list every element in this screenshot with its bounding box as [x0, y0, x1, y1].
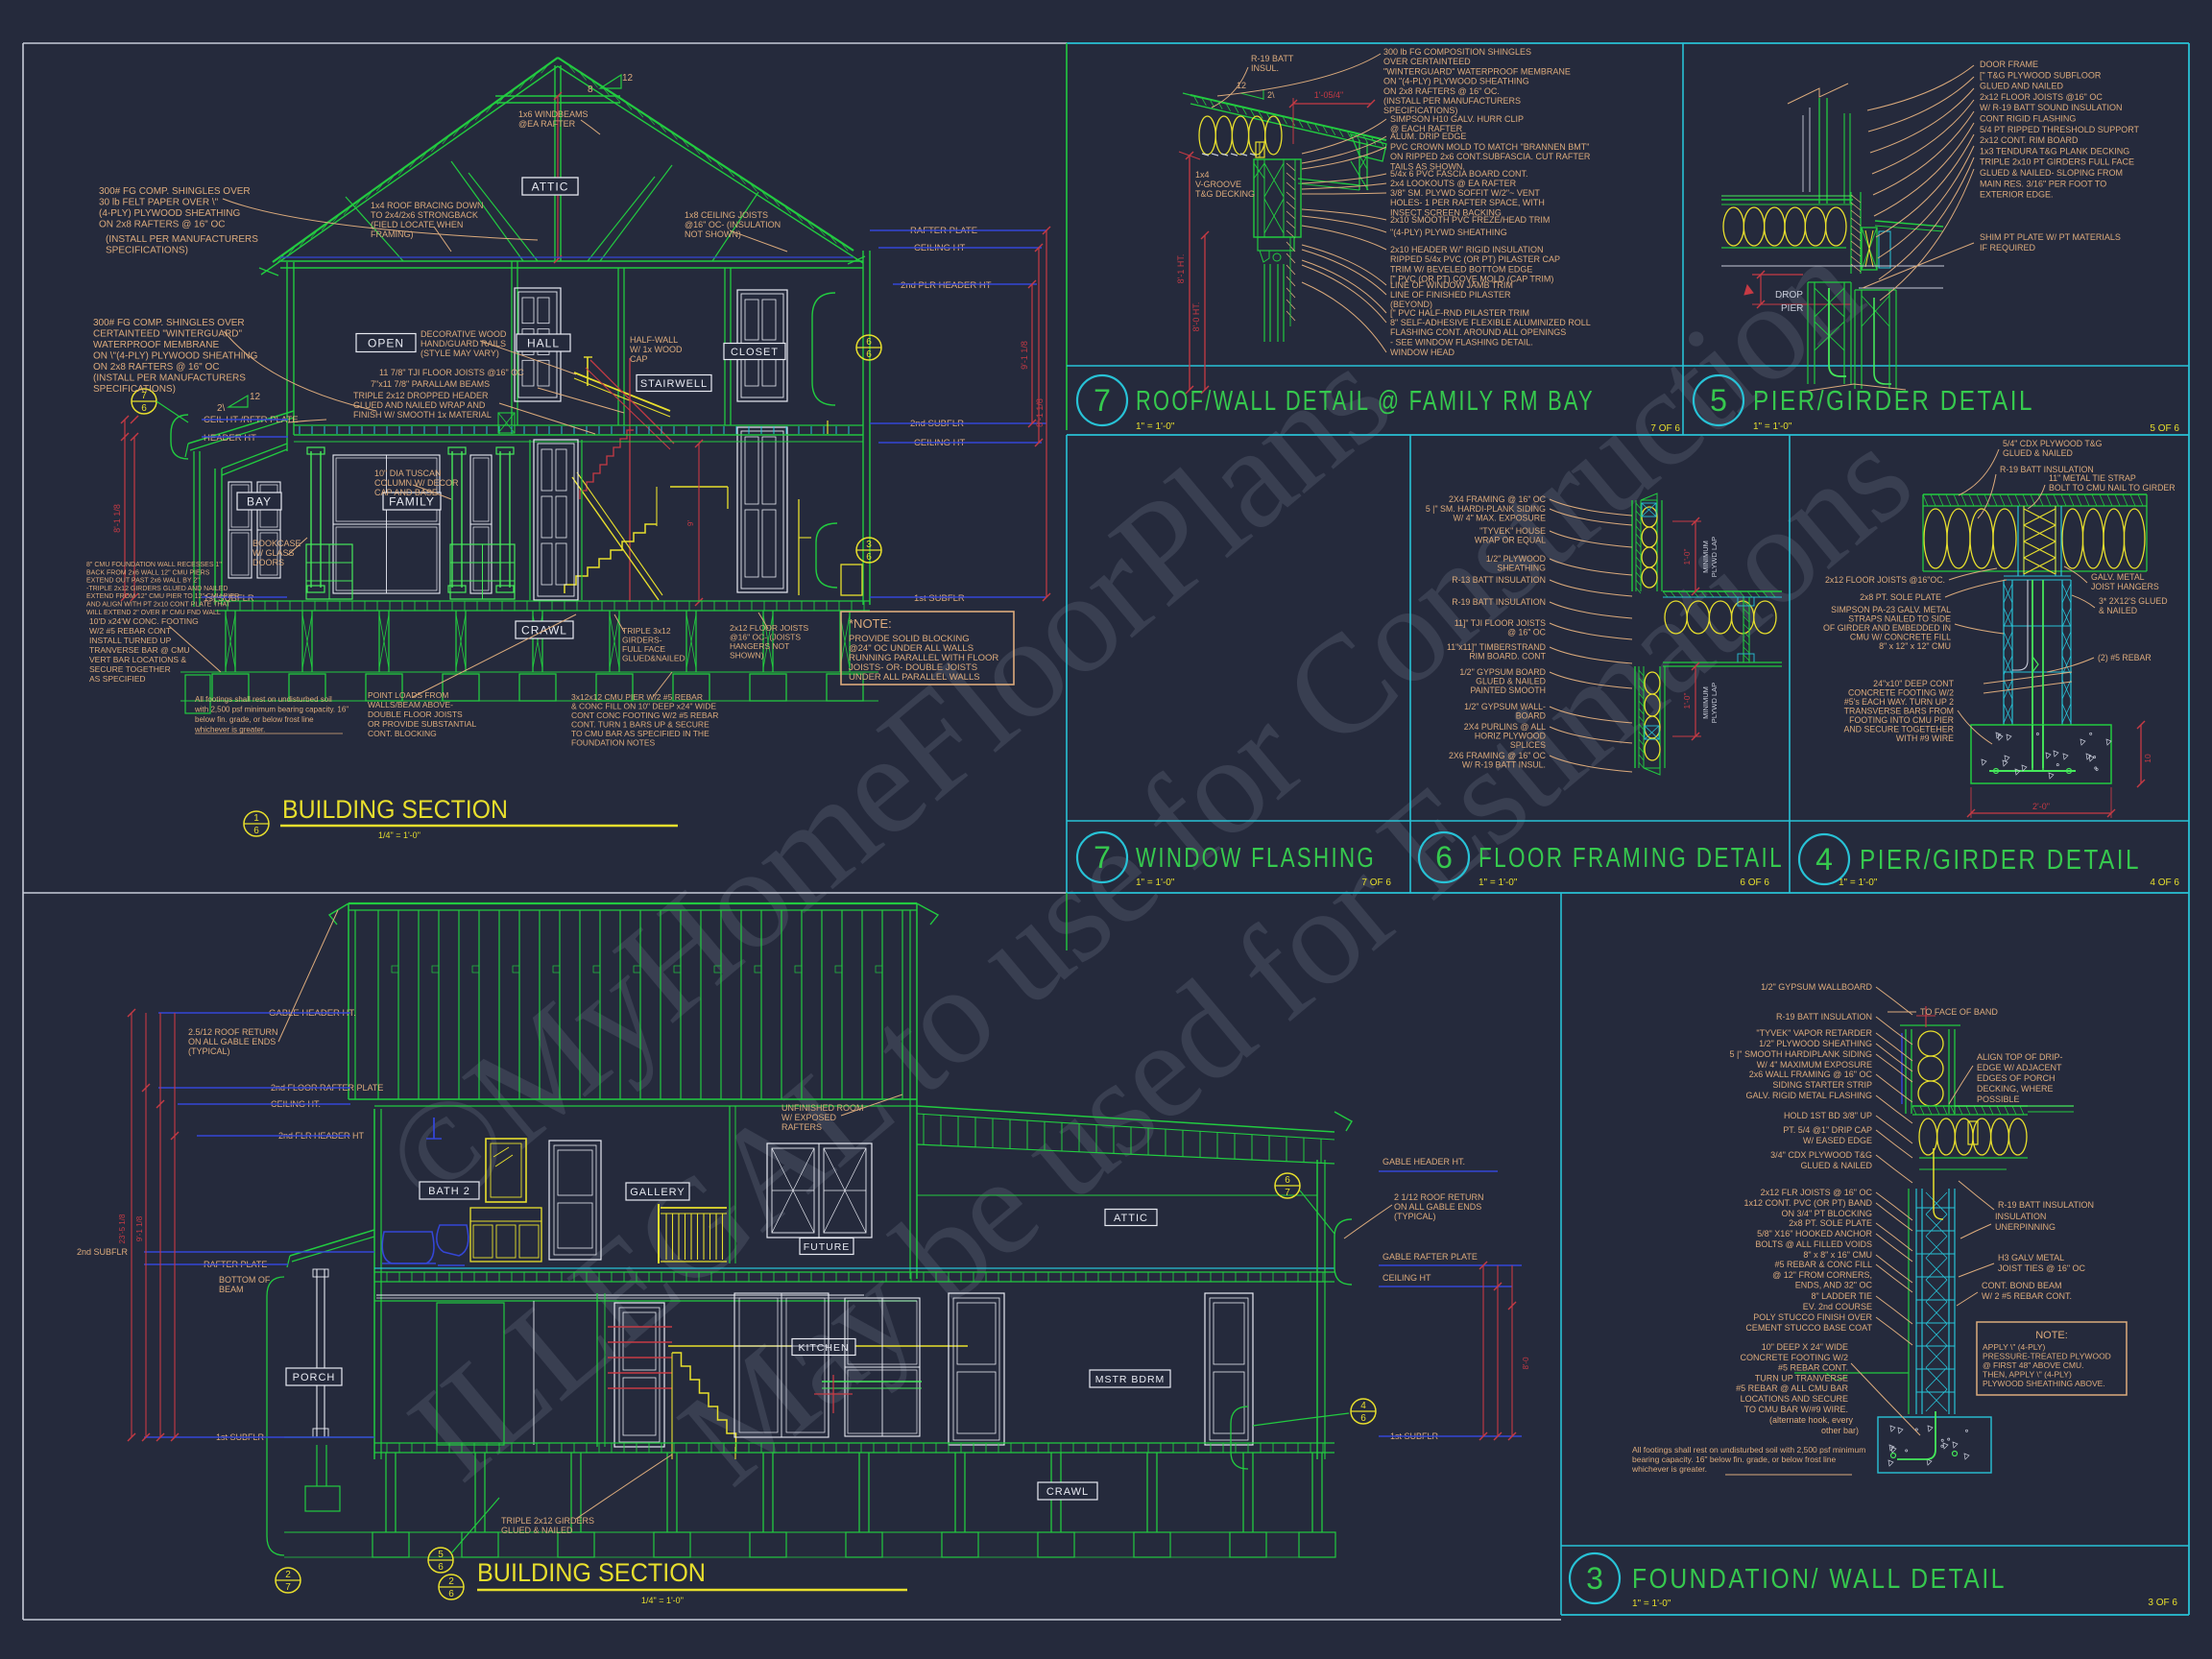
- svg-text:23'-5 1/8: 23'-5 1/8: [118, 1214, 127, 1243]
- svg-text:whichever is greater.: whichever is greater.: [1631, 1464, 1707, 1474]
- svg-text:(alternate hook, every: (alternate hook, every: [1769, 1415, 1854, 1425]
- svg-text:FLOOR FRAMING DETAIL: FLOOR FRAMING DETAIL: [1479, 843, 1784, 874]
- svg-text:9'-1 1/8: 9'-1 1/8: [135, 1215, 144, 1241]
- svg-text:CRAWL: CRAWL: [1046, 1486, 1089, 1498]
- svg-text:1x6 WINDBEAMS: 1x6 WINDBEAMS: [518, 109, 589, 119]
- svg-text:HALF-WALL: HALF-WALL: [630, 335, 678, 345]
- svg-text:OR PROVIDE SUBSTANTIAL: OR PROVIDE SUBSTANTIAL: [368, 719, 476, 729]
- svg-text:RIPPED 5/4x PVC (OR PT) PILAST: RIPPED 5/4x PVC (OR PT) PILASTER CAP: [1390, 254, 1560, 264]
- svg-text:W/ 2 #5 REBAR CONT.: W/ 2 #5 REBAR CONT.: [1982, 1291, 2072, 1301]
- svg-text:IF REQUIRED: IF REQUIRED: [1980, 243, 2036, 252]
- svg-text:#5 REBAR & CONC FILL: #5 REBAR & CONC FILL: [1774, 1260, 1872, 1269]
- svg-text:ON ALL GABLE ENDS: ON ALL GABLE ENDS: [188, 1037, 276, 1046]
- svg-text:1x3 TENDURA T&G PLANK DECKING: 1x3 TENDURA T&G PLANK DECKING: [1980, 146, 2129, 156]
- svg-text:& NAILED: & NAILED: [2099, 606, 2137, 615]
- svg-text:(2) #5 REBAR: (2) #5 REBAR: [2098, 653, 2152, 662]
- svg-text:1" = 1'-0": 1" = 1'-0": [1632, 1599, 1671, 1609]
- svg-text:"WINTERGUARD" WATERPROOF MEMBR: "WINTERGUARD" WATERPROOF MEMBRANE: [1383, 66, 1571, 76]
- svg-text:HOLES- 1 PER RAFTER SPACE, WIT: HOLES- 1 PER RAFTER SPACE, WITH: [1390, 198, 1545, 207]
- svg-text:BOLT TO CMU NAIL TO GIRDER: BOLT TO CMU NAIL TO GIRDER: [2049, 483, 2176, 493]
- svg-text:AND SECURE TOGETEHER: AND SECURE TOGETEHER: [1843, 725, 1954, 734]
- svg-text:11"x11]" TIMBERSTRAND: 11"x11]" TIMBERSTRAND: [1447, 642, 1546, 652]
- svg-text:@ 12" FROM CORNERS,: @ 12" FROM CORNERS,: [1772, 1270, 1872, 1280]
- svg-text:(FIELD LOCATE WHEN: (FIELD LOCATE WHEN: [371, 220, 463, 229]
- svg-text:R-19 BATT INSULATION: R-19 BATT INSULATION: [1776, 1012, 1872, 1022]
- svg-text:STRAPS NAILED TO SIDE: STRAPS NAILED TO SIDE: [1848, 614, 1951, 624]
- svg-text:2X4 PURLINS @ ALL: 2X4 PURLINS @ ALL: [1464, 722, 1546, 732]
- svg-text:R-19 BATT INSULATION: R-19 BATT INSULATION: [1452, 597, 1546, 607]
- svg-text:SIMPSON H10 GALV. HURR CLIP: SIMPSON H10 GALV. HURR CLIP: [1390, 114, 1524, 124]
- svg-text:HEADER HT: HEADER HT: [204, 433, 256, 444]
- svg-text:GLUED & NAILED: GLUED & NAILED: [1800, 1161, 1872, 1170]
- svg-text:ON 3/4" PT BLOCKING: ON 3/4" PT BLOCKING: [1781, 1209, 1872, 1218]
- svg-text:INSTALL TURNED UP: INSTALL TURNED UP: [89, 636, 172, 645]
- svg-text:W/2 #5 REBAR CONT: W/2 #5 REBAR CONT: [89, 626, 171, 636]
- svg-text:POSSIBLE: POSSIBLE: [1977, 1094, 2020, 1104]
- svg-text:(STYLE MAY VARY): (STYLE MAY VARY): [421, 349, 499, 358]
- svg-text:CONCRETE FOOTING W/2: CONCRETE FOOTING W/2: [1848, 688, 1954, 698]
- svg-text:W/ EASED EDGE: W/ EASED EDGE: [1803, 1136, 1872, 1145]
- svg-text:LINE OF WINDOW JAMB TRIM: LINE OF WINDOW JAMB TRIM: [1390, 280, 1513, 290]
- svg-text:SHIM PT PLATE W/ PT MATERIALS: SHIM PT PLATE W/ PT MATERIALS: [1980, 232, 2121, 242]
- svg-text:MINIMUM: MINIMUM: [1701, 541, 1710, 573]
- svg-text:PLYWOOD SHEATHING ABOVE.: PLYWOOD SHEATHING ABOVE.: [1983, 1379, 2105, 1388]
- svg-text:1'-0": 1'-0": [1682, 549, 1692, 565]
- svg-text:1" = 1'-0": 1" = 1'-0": [1136, 878, 1175, 888]
- svg-text:GLUED & NAILED: GLUED & NAILED: [501, 1526, 573, 1535]
- svg-text:2x10 HEADER W/" RIGID INSULATI: 2x10 HEADER W/" RIGID INSULATION: [1390, 245, 1544, 254]
- svg-text:SIDING STARTER STRIP: SIDING STARTER STRIP: [1772, 1080, 1872, 1090]
- svg-text:1" = 1'-0": 1" = 1'-0": [1753, 421, 1792, 432]
- svg-text:PRESSURE-TREATED PLYWOOD: PRESSURE-TREATED PLYWOOD: [1983, 1352, 2111, 1361]
- svg-text:2x12 FLR JOISTS @ 16" OC: 2x12 FLR JOISTS @ 16" OC: [1761, 1188, 1873, 1197]
- svg-text:CMU W/ CONCRETE FILL: CMU W/ CONCRETE FILL: [1850, 633, 1951, 642]
- svg-text:2.5/12 ROOF RETURN: 2.5/12 ROOF RETURN: [188, 1027, 278, 1037]
- svg-text:4 OF 6: 4 OF 6: [2150, 878, 2179, 888]
- svg-text:- SEE WINDOW FLASHING DETAIL.: - SEE WINDOW FLASHING DETAIL.: [1390, 337, 1533, 347]
- svg-text:2X6 FRAMING @ 16" OC: 2X6 FRAMING @ 16" OC: [1449, 751, 1547, 760]
- svg-text:6: 6: [141, 403, 147, 414]
- svg-text:TRANSVERSE BARS FROM: TRANSVERSE BARS FROM: [1844, 707, 1954, 716]
- svg-text:All footings shall rest on und: All footings shall rest on undisturbed s…: [1632, 1445, 1865, 1455]
- svg-text:APPLY \" (4-PLY): APPLY \" (4-PLY): [1983, 1342, 2046, 1352]
- svg-text:#5 REBAR @ ALL CMU BAR: #5 REBAR @ ALL CMU BAR: [1736, 1383, 1848, 1393]
- svg-text:FINISH W/ SMOOTH 1x MATERIAL: FINISH W/ SMOOTH 1x MATERIAL: [353, 410, 492, 420]
- svg-text:7: 7: [285, 1582, 291, 1593]
- svg-text:3: 3: [1586, 1561, 1603, 1596]
- svg-text:10'D x24'W CONC. FOOTING: 10'D x24'W CONC. FOOTING: [89, 616, 199, 626]
- svg-text:ON ALL GABLE ENDS: ON ALL GABLE ENDS: [1394, 1202, 1481, 1212]
- svg-text:4: 4: [1360, 1401, 1366, 1411]
- svg-text:(INSTALL PER MANUFACTURERS: (INSTALL PER MANUFACTURERS: [106, 234, 258, 245]
- svg-text:@16" OC- (INSULATION: @16" OC- (INSULATION: [685, 220, 781, 229]
- svg-text:3: 3: [866, 540, 872, 550]
- svg-text:MAIN RES. 3/16" PER FOOT TO: MAIN RES. 3/16" PER FOOT TO: [1980, 179, 2106, 188]
- svg-text:BOARD: BOARD: [1516, 711, 1546, 721]
- svg-text:JOIST TIES @ 16" OC: JOIST TIES @ 16" OC: [1998, 1263, 2086, 1273]
- svg-text:GALV. METAL: GALV. METAL: [2091, 572, 2145, 582]
- svg-text:5/4x 6 PVC FASCIA BOARD CONT.: 5/4x 6 PVC FASCIA BOARD CONT.: [1390, 169, 1528, 179]
- svg-text:VERT BAR LOCATIONS &: VERT BAR LOCATIONS &: [89, 655, 186, 664]
- svg-text:12: 12: [622, 73, 634, 84]
- svg-text:CONT. BLOCKING: CONT. BLOCKING: [368, 729, 437, 738]
- svg-text:GLUED AND NAILED WRAP AND: GLUED AND NAILED WRAP AND: [353, 400, 486, 410]
- svg-text:FLASHING CONT. AROUND ALL OPEN: FLASHING CONT. AROUND ALL OPENINGS: [1390, 327, 1566, 337]
- svg-text:OF GIRDER AND EMBEDDED IN: OF GIRDER AND EMBEDDED IN: [1823, 623, 1951, 633]
- svg-text:2x10 SMOOTH PVC FREZE/HEAD TRI: 2x10 SMOOTH PVC FREZE/HEAD TRIM: [1390, 215, 1550, 225]
- svg-text:EXTEND FROM 12" CMU PIER TO 12: EXTEND FROM 12" CMU PIER TO 12" CMU PIER: [86, 593, 239, 600]
- svg-text:POINT LOADS FROM: POINT LOADS FROM: [368, 690, 448, 700]
- svg-text:2: 2: [285, 1570, 291, 1580]
- svg-text:STAIRWELL: STAIRWELL: [640, 378, 708, 390]
- svg-text:FRAMING): FRAMING): [371, 229, 414, 239]
- svg-text:CONT CONC FOOTING W/2 #5 REBAR: CONT CONC FOOTING W/2 #5 REBAR: [571, 710, 718, 720]
- svg-text:UNERPINNING: UNERPINNING: [1995, 1222, 2056, 1232]
- svg-text:GABLE HEADER HT.: GABLE HEADER HT.: [1382, 1157, 1465, 1166]
- svg-text:1x8 CEILING JOISTS: 1x8 CEILING JOISTS: [685, 210, 768, 220]
- svg-text:12: 12: [250, 392, 261, 402]
- svg-text:below fin. grade, or below fro: below fin. grade, or below frost line: [195, 715, 314, 724]
- svg-text:TRIPLE 2x12 GIRDERS: TRIPLE 2x12 GIRDERS: [501, 1516, 594, 1526]
- svg-text:BEAM: BEAM: [219, 1285, 244, 1294]
- svg-text:7: 7: [1094, 383, 1111, 418]
- svg-text:NOT SHOWN): NOT SHOWN): [685, 229, 741, 239]
- svg-text:2x4 LOOKOUTS @ EA RAFTER: 2x4 LOOKOUTS @ EA RAFTER: [1390, 179, 1517, 188]
- svg-text:1: 1: [253, 813, 259, 824]
- svg-text:2x12 FLOOR JOISTS @16"OC.: 2x12 FLOOR JOISTS @16"OC.: [1825, 575, 1945, 585]
- svg-text:W/ 4" MAX. EXPOSURE: W/ 4" MAX. EXPOSURE: [1454, 514, 1547, 523]
- svg-text:2'-0": 2'-0": [2032, 802, 2050, 811]
- svg-text:GALLERY: GALLERY: [630, 1187, 685, 1198]
- svg-text:CERTAINTEED "WINTERGUARD": CERTAINTEED "WINTERGUARD": [93, 329, 243, 340]
- svg-text:5: 5: [438, 1550, 444, 1560]
- svg-text:TRIM W/ BEVELED BOTTOM EDGE: TRIM W/ BEVELED BOTTOM EDGE: [1390, 264, 1532, 274]
- svg-text:DECORATIVE WOOD: DECORATIVE WOOD: [421, 329, 507, 339]
- svg-text:8'-0: 8'-0: [1522, 1357, 1530, 1370]
- svg-text:FOUNDATION NOTES: FOUNDATION NOTES: [571, 738, 656, 748]
- svg-text:3/4" CDX PLYWOOD T&G: 3/4" CDX PLYWOOD T&G: [1770, 1150, 1872, 1160]
- svg-text:2x6 WALL FRAMING @ 16" OC: 2x6 WALL FRAMING @ 16" OC: [1749, 1070, 1873, 1079]
- svg-text:HANGERS NOT: HANGERS NOT: [730, 641, 789, 651]
- svg-text:1/2" PLYWOOD: 1/2" PLYWOOD: [1486, 554, 1546, 564]
- svg-text:TO CMU BAR W/#9 WIRE.: TO CMU BAR W/#9 WIRE.: [1744, 1405, 1848, 1414]
- svg-text:AND ALIGN WITH PT 2x10 CONT PL: AND ALIGN WITH PT 2x10 CONT PLATE THAT: [86, 602, 231, 609]
- svg-text:whichever is greater.: whichever is greater.: [194, 726, 265, 734]
- svg-text:11 7/8" TJI FLOOR JOISTS @16": 11 7/8" TJI FLOOR JOISTS @16" OC: [379, 368, 524, 377]
- svg-text:8'-1 1/8: 8'-1 1/8: [112, 504, 122, 533]
- svg-text:HALL: HALL: [527, 336, 560, 349]
- svg-text:6: 6: [253, 826, 259, 836]
- svg-text:1" = 1'-0": 1" = 1'-0": [1479, 878, 1518, 888]
- svg-text:BATH 2: BATH 2: [428, 1186, 470, 1197]
- svg-text:2x8 PT. SOLE PLATE: 2x8 PT. SOLE PLATE: [1860, 592, 1941, 602]
- svg-text:FUTURE: FUTURE: [804, 1241, 851, 1253]
- svg-text:8" SELF-ADHESIVE FLEXIBLE ALUM: 8" SELF-ADHESIVE FLEXIBLE ALUMINIZED ROL…: [1390, 318, 1591, 327]
- svg-text:TRANVERSE BAR @ CMU: TRANVERSE BAR @ CMU: [89, 645, 190, 655]
- svg-text:UNFINISHED ROOM: UNFINISHED ROOM: [781, 1103, 864, 1113]
- svg-text:BAY: BAY: [247, 494, 272, 508]
- svg-text:INSULATION: INSULATION: [1995, 1212, 2046, 1221]
- svg-text:ON "(4-PLY) PLYWOOD SHEATHING: ON "(4-PLY) PLYWOOD SHEATHING: [1383, 77, 1529, 86]
- svg-text:5/8" X16" HOOKED ANCHOR: 5/8" X16" HOOKED ANCHOR: [1757, 1229, 1872, 1238]
- svg-text:PAINTED SMOOTH: PAINTED SMOOTH: [1470, 685, 1546, 695]
- svg-text:BUILDING SECTION: BUILDING SECTION: [477, 1558, 706, 1587]
- svg-text:8" CMU FOUNDATION WALL RECESSE: 8" CMU FOUNDATION WALL RECESSES 1": [86, 562, 222, 568]
- svg-text:6: 6: [866, 337, 872, 348]
- svg-text:3 OF 6: 3 OF 6: [2148, 1598, 2177, 1608]
- svg-text:TRIPLE 3x12: TRIPLE 3x12: [622, 626, 671, 636]
- svg-text:ATTIC: ATTIC: [532, 180, 569, 193]
- svg-text:PVC CROWN MOLD TO MATCH "BRANN: PVC CROWN MOLD TO MATCH "BRANNEN BMT": [1390, 142, 1589, 152]
- svg-text:R-13 BATT INSULATION: R-13 BATT INSULATION: [1452, 575, 1546, 585]
- svg-text:SPLICES: SPLICES: [1510, 740, 1546, 750]
- svg-text:GLUED & NAILED: GLUED & NAILED: [2003, 448, 2073, 458]
- svg-text:"TYVEK" VAPOR RETARDER: "TYVEK" VAPOR RETARDER: [1756, 1028, 1872, 1038]
- svg-text:11]" TJI FLOOR JOISTS: 11]" TJI FLOOR JOISTS: [1455, 618, 1546, 628]
- svg-text:PORCH: PORCH: [293, 1372, 336, 1383]
- svg-text:OPEN: OPEN: [368, 336, 404, 349]
- svg-text:GLUED AND NAILED: GLUED AND NAILED: [1980, 82, 2064, 91]
- svg-text:(4-PLY) PLYWOOD SHEATHING: (4-PLY) PLYWOOD SHEATHING: [99, 208, 240, 219]
- svg-text:1x4 ROOF BRACING DOWN: 1x4 ROOF BRACING DOWN: [371, 201, 484, 210]
- svg-text:BOLTS @ ALL FILLED VOIDS: BOLTS @ ALL FILLED VOIDS: [1755, 1239, 1872, 1249]
- svg-text:1st SUBFLR: 1st SUBFLR: [914, 593, 965, 604]
- svg-text:7 OF 6: 7 OF 6: [1650, 423, 1680, 434]
- svg-text:1" = 1'-0": 1" = 1'-0": [1839, 878, 1878, 888]
- svg-text:TRIPLE 2x10 PT GIRDERS FULL FA: TRIPLE 2x10 PT GIRDERS FULL FACE: [1980, 157, 2134, 167]
- svg-text:CEMENT STUCCO BASE COAT: CEMENT STUCCO BASE COAT: [1745, 1323, 1872, 1333]
- svg-text:7: 7: [1094, 840, 1111, 875]
- svg-text:3x12x12 CMU PIER W/2 #5 REBAR: 3x12x12 CMU PIER W/2 #5 REBAR: [571, 692, 703, 702]
- svg-text:"TYVEK" HOUSE: "TYVEK" HOUSE: [1479, 526, 1546, 536]
- svg-text:DOOR FRAME: DOOR FRAME: [1980, 60, 2038, 69]
- svg-text:6: 6: [1435, 840, 1453, 875]
- svg-text:5: 5: [1710, 383, 1727, 418]
- svg-text:300 lb FG COMPOSITION SHINGLES: 300 lb FG COMPOSITION SHINGLES: [1383, 47, 1531, 57]
- svg-text:CONT. BOND BEAM: CONT. BOND BEAM: [1982, 1281, 2062, 1290]
- svg-text:HOLD 1ST BD 3/8" UP: HOLD 1ST BD 3/8" UP: [1784, 1111, 1872, 1120]
- svg-text:T&G DECKING: T&G DECKING: [1195, 189, 1255, 199]
- svg-text:with 2,500 psf minimum bearing: with 2,500 psf minimum bearing capacity.…: [194, 706, 349, 714]
- svg-text:1" = 1'-0": 1" = 1'-0": [1136, 421, 1175, 432]
- svg-text:CAP: CAP: [630, 354, 648, 364]
- svg-text:WILL EXTEND 2" OVER 8" CMU FND: WILL EXTEND 2" OVER 8" CMU FND WALL: [86, 610, 221, 616]
- svg-text:6: 6: [448, 1589, 454, 1599]
- svg-text:ALIGN TOP OF DRIP-: ALIGN TOP OF DRIP-: [1977, 1052, 2063, 1062]
- svg-text:ON RIPPED 2x6 CONT.SUBFASCIA.: ON RIPPED 2x6 CONT.SUBFASCIA. CUT RAFTER: [1390, 152, 1591, 161]
- svg-text:BACK FROM 2x6 WALL 12" CMU PI: BACK FROM 2x6 WALL 12" CMU PIERS: [86, 569, 210, 576]
- svg-text:NOTE:: NOTE:: [2035, 1330, 2068, 1341]
- svg-text:WALLS/BEAM ABOVE-: WALLS/BEAM ABOVE-: [368, 700, 453, 709]
- svg-text:bearing capacity. 16" below fi: bearing capacity. 16" below fin. grade, …: [1632, 1455, 1836, 1464]
- svg-text:WRAP OR EQUAL: WRAP OR EQUAL: [1475, 536, 1546, 545]
- svg-text:CONT. TURN 1 BARS UP & SECURE: CONT. TURN 1 BARS UP & SECURE: [571, 720, 709, 730]
- svg-text:EDGE W/ ADJACENT: EDGE W/ ADJACENT: [1977, 1063, 2062, 1072]
- svg-text:3/8" SM. PLYWD SOFFIT W/2"~ VE: 3/8" SM. PLYWD SOFFIT W/2"~ VENT: [1390, 188, 1540, 198]
- svg-text:[" T&G PLYWOOD SUBFLOOR: [" T&G PLYWOOD SUBFLOOR: [1980, 70, 2102, 80]
- svg-text:INSUL.: INSUL.: [1251, 63, 1279, 73]
- svg-text:SHOWN): SHOWN): [730, 651, 764, 661]
- svg-text:WATERPROOF MEMBRANE: WATERPROOF MEMBRANE: [93, 340, 219, 350]
- svg-text:W/ 1x WOOD: W/ 1x WOOD: [630, 345, 683, 354]
- svg-text:1/2" PLYWOOD SHEATHING: 1/2" PLYWOOD SHEATHING: [1759, 1039, 1872, 1048]
- svg-text:KITCHEN: KITCHEN: [798, 1342, 849, 1354]
- svg-text:RAFTERS: RAFTERS: [781, 1122, 822, 1132]
- svg-text:9': 9': [686, 520, 695, 526]
- svg-text:1'-05/4": 1'-05/4": [1314, 90, 1343, 100]
- svg-text:TURN UP TRANVERSE: TURN UP TRANVERSE: [1755, 1373, 1848, 1382]
- svg-text:WITH #9 WIRE: WITH #9 WIRE: [1896, 733, 1954, 743]
- svg-text:W/ R-19 BATT SOUND INSULATION: W/ R-19 BATT SOUND INSULATION: [1980, 103, 2123, 112]
- svg-text:DECKING, WHERE: DECKING, WHERE: [1977, 1084, 2054, 1094]
- svg-text:DOORS: DOORS: [252, 558, 284, 567]
- svg-text:GALV. RIGID METAL FLASHING: GALV. RIGID METAL FLASHING: [1745, 1091, 1872, 1100]
- svg-text:7 OF 6: 7 OF 6: [1361, 878, 1391, 888]
- svg-text:BUILDING SECTION: BUILDING SECTION: [282, 795, 508, 824]
- svg-text:6: 6: [438, 1562, 444, 1573]
- svg-text:ALUM. DRIP EDGE: ALUM. DRIP EDGE: [1390, 132, 1466, 141]
- svg-text:DROP: DROP: [1775, 290, 1803, 301]
- svg-text:SPECIFICATIONS): SPECIFICATIONS): [106, 246, 188, 256]
- svg-text:LOCATIONS AND SECURE: LOCATIONS AND SECURE: [1741, 1394, 1848, 1404]
- svg-text:6: 6: [1285, 1175, 1290, 1186]
- svg-text:PLYWD LAP: PLYWD LAP: [1710, 537, 1719, 577]
- svg-text:2nd PLR HEADER HT: 2nd PLR HEADER HT: [901, 280, 992, 291]
- svg-text:W/ EXPOSED: W/ EXPOSED: [781, 1113, 837, 1122]
- svg-text:TO 2x4/2x6 STRONGBACK: TO 2x4/2x6 STRONGBACK: [371, 210, 478, 220]
- svg-text:2\: 2\: [1267, 90, 1275, 100]
- svg-text:MINIMUM: MINIMUM: [1701, 686, 1710, 719]
- svg-text:DOUBLE FLOOR JOISTS: DOUBLE FLOOR JOISTS: [368, 709, 463, 719]
- svg-text:CONCRETE FOOTING W/2: CONCRETE FOOTING W/2: [1741, 1353, 1849, 1362]
- svg-text:ON \"(4-PLY) PLYWOOD SHEATHING: ON \"(4-PLY) PLYWOOD SHEATHING: [93, 351, 258, 362]
- svg-text:H3 GALV METAL: H3 GALV METAL: [1998, 1253, 2064, 1262]
- svg-text:1/4" = 1'-0": 1/4" = 1'-0": [641, 1596, 684, 1605]
- svg-text:@ FIRST 48" ABOVE CMU.: @ FIRST 48" ABOVE CMU.: [1983, 1360, 2084, 1370]
- svg-text:ON 2x8 RAFTERS @ 16" OC: ON 2x8 RAFTERS @ 16" OC: [93, 362, 220, 373]
- svg-text:CONT RIGID FLASHING: CONT RIGID FLASHING: [1980, 114, 2076, 124]
- svg-text:OVER CERTAINTEED: OVER CERTAINTEED: [1383, 57, 1471, 66]
- svg-text:5 |" SMOOTH HARDIPLANK SIDING: 5 |" SMOOTH HARDIPLANK SIDING: [1729, 1049, 1872, 1059]
- svg-text:1x4: 1x4: [1195, 170, 1210, 180]
- svg-text:1'-0": 1'-0": [1682, 693, 1692, 709]
- svg-text:2\: 2\: [217, 403, 226, 414]
- svg-text:(TYPICAL): (TYPICAL): [188, 1046, 230, 1056]
- svg-text:GLUED & NAILED: GLUED & NAILED: [1476, 677, 1546, 686]
- svg-text:ON 2x8 RAFTERS @ 16" OC.: ON 2x8 RAFTERS @ 16" OC.: [1383, 86, 1500, 96]
- svg-text:HORIZ PLYWOOD: HORIZ PLYWOOD: [1475, 732, 1546, 741]
- svg-text:6: 6: [1360, 1413, 1366, 1424]
- svg-text:SHEATHING: SHEATHING: [1497, 564, 1546, 573]
- svg-text:8" x 8" x 16" CMU: 8" x 8" x 16" CMU: [1803, 1250, 1872, 1260]
- svg-text:@EA RAFTER: @EA RAFTER: [518, 119, 576, 129]
- svg-text:GIRDERS-: GIRDERS-: [622, 636, 662, 645]
- svg-text:PIER/GIRDER DETAIL: PIER/GIRDER DETAIL: [1753, 386, 2034, 417]
- svg-text:RIM BOARD. CONT: RIM BOARD. CONT: [1469, 652, 1546, 661]
- svg-text:8'-1 HT.: 8'-1 HT.: [1176, 254, 1186, 284]
- svg-text:2: 2: [448, 1576, 454, 1587]
- svg-text:24"x10" DEEP CONT: 24"x10" DEEP CONT: [1873, 679, 1954, 688]
- svg-text:HAND/GUARD RAILS: HAND/GUARD RAILS: [421, 339, 506, 349]
- svg-text:2X4 FRAMING @ 16" OC: 2X4 FRAMING @ 16" OC: [1449, 494, 1547, 504]
- svg-text:8: 8: [588, 84, 593, 95]
- svg-text:other bar): other bar): [1821, 1426, 1859, 1435]
- svg-text:W/ 4" MAXIMUM EXPOSURE: W/ 4" MAXIMUM EXPOSURE: [1757, 1060, 1872, 1070]
- svg-text:W/ GLASS: W/ GLASS: [252, 548, 295, 558]
- svg-text:11" METAL TIE STRAP: 11" METAL TIE STRAP: [2049, 473, 2136, 483]
- svg-text:"(4-PLY) PLYWD SHEATHING: "(4-PLY) PLYWD SHEATHING: [1390, 228, 1507, 237]
- svg-text:CEILING HT: CEILING HT: [1382, 1273, 1431, 1283]
- svg-text:7: 7: [1285, 1188, 1290, 1198]
- svg-text:FOUNDATION/ WALL DETAIL: FOUNDATION/ WALL DETAIL: [1632, 1564, 2007, 1595]
- svg-text:AS SPECIFIED: AS SPECIFIED: [89, 674, 146, 684]
- svg-text:FULL FACE: FULL FACE: [622, 644, 665, 654]
- svg-text:EDGES OF PORCH: EDGES OF PORCH: [1977, 1073, 2056, 1083]
- svg-text:3* 2X12'S GLUED: 3* 2X12'S GLUED: [2099, 596, 2168, 606]
- svg-text:GABLE RAFTER PLATE: GABLE RAFTER PLATE: [1382, 1252, 1478, 1262]
- svg-text:10: 10: [2143, 754, 2152, 763]
- svg-text:#5 REBAR CONT.: #5 REBAR CONT.: [1778, 1363, 1848, 1373]
- svg-text:WINDOW HEAD: WINDOW HEAD: [1390, 348, 1455, 357]
- svg-text:6: 6: [866, 349, 872, 360]
- svg-text:R-19 BATT INSULATION: R-19 BATT INSULATION: [1998, 1200, 2094, 1210]
- svg-text:THEN, APPLY \" (4-PLY): THEN, APPLY \" (4-PLY): [1983, 1370, 2072, 1380]
- svg-text:POLY STUCCO FINISH OVER: POLY STUCCO FINISH OVER: [1753, 1312, 1872, 1322]
- svg-text:UNDER ALL PARALLEL WALLS: UNDER ALL PARALLEL WALLS: [849, 672, 980, 683]
- svg-text:@ 16" OC: @ 16" OC: [1507, 628, 1547, 637]
- svg-text:10" DIA TUSCAN: 10" DIA TUSCAN: [374, 469, 442, 478]
- svg-text:1/2" GYPSUM WALL-: 1/2" GYPSUM WALL-: [1464, 702, 1546, 711]
- svg-text:ON 2x8 RAFTERS @ 16" OC: ON 2x8 RAFTERS @ 16" OC: [99, 220, 226, 230]
- svg-text:PIER: PIER: [1781, 303, 1803, 314]
- svg-text:ROOF/WALL DETAIL @ FAMILY RM B: ROOF/WALL DETAIL @ FAMILY RM BAY: [1136, 386, 1595, 417]
- svg-text:8" LADDER TIE: 8" LADDER TIE: [1811, 1291, 1872, 1301]
- svg-text:5 OF 6: 5 OF 6: [2150, 423, 2179, 434]
- svg-text:2x12 FLOOR JOISTS @16" OC: 2x12 FLOOR JOISTS @16" OC: [1980, 92, 2103, 102]
- svg-text:TO CMU BAR AS SPECIFIED IN THE: TO CMU BAR AS SPECIFIED IN THE: [571, 729, 709, 738]
- svg-text:CAP AND BASE: CAP AND BASE: [374, 488, 438, 497]
- svg-text:SECURE TOGETHER: SECURE TOGETHER: [89, 664, 171, 674]
- svg-text:5/4" CDX PLYWOOD T&G: 5/4" CDX PLYWOOD T&G: [2003, 439, 2103, 448]
- svg-text:R-19 BATT: R-19 BATT: [1251, 54, 1294, 63]
- svg-text:4: 4: [1815, 842, 1833, 877]
- svg-text:-TRIPLE 2x12 GIRDERS GLUED AND: -TRIPLE 2x12 GIRDERS GLUED AND NAILED: [86, 586, 228, 592]
- svg-text:300# FG COMP. SHINGLES OVER: 300# FG COMP. SHINGLES OVER: [93, 318, 245, 328]
- svg-text:2x8 PT. SOLE PLATE: 2x8 PT. SOLE PLATE: [1789, 1218, 1872, 1228]
- svg-text:TRIPLE 2x12 DROPPED HEADER: TRIPLE 2x12 DROPPED HEADER: [353, 391, 489, 400]
- svg-text:TO FACE OF BAND: TO FACE OF BAND: [1920, 1007, 1998, 1017]
- svg-text:CLOSET: CLOSET: [731, 347, 779, 358]
- svg-text:BOTTOM OF: BOTTOM OF: [219, 1275, 271, 1285]
- svg-text:1x12 CONT. PVC (OR PT) BAND: 1x12 CONT. PVC (OR PT) BAND: [1743, 1198, 1872, 1208]
- svg-text:ATTIC: ATTIC: [1114, 1213, 1148, 1224]
- svg-text:2 1/12 ROOF RETURN: 2 1/12 ROOF RETURN: [1394, 1192, 1484, 1202]
- svg-text:GLUED & NAILED- SLOPING FROM: GLUED & NAILED- SLOPING FROM: [1980, 168, 2123, 178]
- svg-text:9'-1 1/8: 9'-1 1/8: [1020, 341, 1029, 370]
- svg-text:5/4 PT RIPPED THRESHOLD SUPPOR: 5/4 PT RIPPED THRESHOLD SUPPORT: [1980, 125, 2140, 134]
- svg-text:8'-1 1/8: 8'-1 1/8: [1035, 398, 1045, 427]
- svg-text:*NOTE:: *NOTE:: [849, 616, 892, 631]
- svg-text:2x12 FLOOR JOISTS: 2x12 FLOOR JOISTS: [730, 623, 809, 633]
- svg-text:2nd SUBFLR: 2nd SUBFLR: [77, 1247, 129, 1257]
- svg-text:All footings shall rest on und: All footings shall rest on undisturbed s…: [195, 695, 332, 704]
- svg-text:WINDOW FLASHING: WINDOW FLASHING: [1136, 843, 1376, 874]
- svg-text:#5's EACH WAY. TURN UP 2: #5's EACH WAY. TURN UP 2: [1844, 697, 1954, 707]
- svg-text:PT. 5/4 @1" DRIP CAP: PT. 5/4 @1" DRIP CAP: [1783, 1125, 1872, 1135]
- svg-text:V-GROOVE: V-GROOVE: [1195, 180, 1241, 189]
- svg-text:[" PVC HALF-RND PILASTER TRIM: [" PVC HALF-RND PILASTER TRIM: [1390, 308, 1529, 318]
- svg-text:SIMPSON PA-23 GALV. METAL: SIMPSON PA-23 GALV. METAL: [1831, 605, 1951, 614]
